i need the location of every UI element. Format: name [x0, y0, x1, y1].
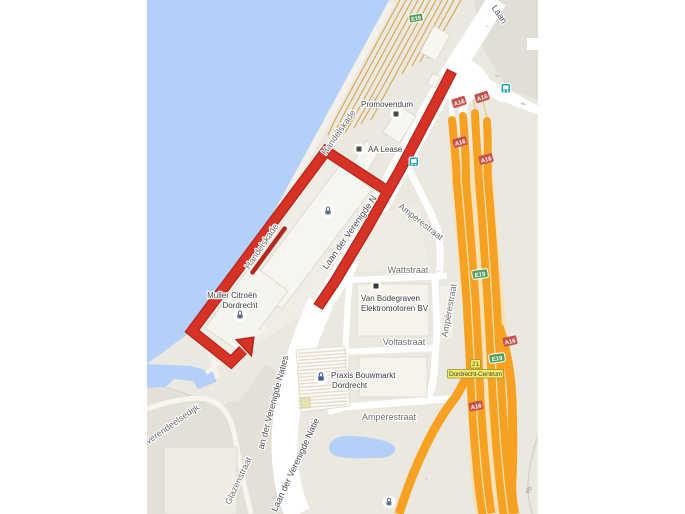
svg-text:Van Bodegraven: Van Bodegraven	[361, 294, 420, 303]
svg-text:Dordrecht-Centrum: Dordrecht-Centrum	[449, 371, 503, 378]
svg-text:Promovendum: Promovendum	[361, 100, 413, 109]
svg-text:Elektromotoren BV: Elektromotoren BV	[361, 304, 429, 313]
svg-text:←: ←	[436, 268, 442, 274]
svg-text:Dordrecht: Dordrecht	[222, 301, 258, 310]
svg-text:Dordrecht: Dordrecht	[332, 381, 368, 390]
svg-text:21: 21	[472, 362, 479, 368]
svg-text:Wattstraat: Wattstraat	[388, 265, 429, 275]
svg-text:Praxis Bouwmarkt: Praxis Bouwmarkt	[331, 371, 396, 380]
svg-text:Voltastraat: Voltastraat	[383, 337, 426, 347]
svg-text:Muller Citroën: Muller Citroën	[207, 291, 257, 300]
svg-text:AA Lease: AA Lease	[368, 145, 403, 154]
svg-text:Ampèrestraat: Ampèrestraat	[362, 412, 417, 422]
